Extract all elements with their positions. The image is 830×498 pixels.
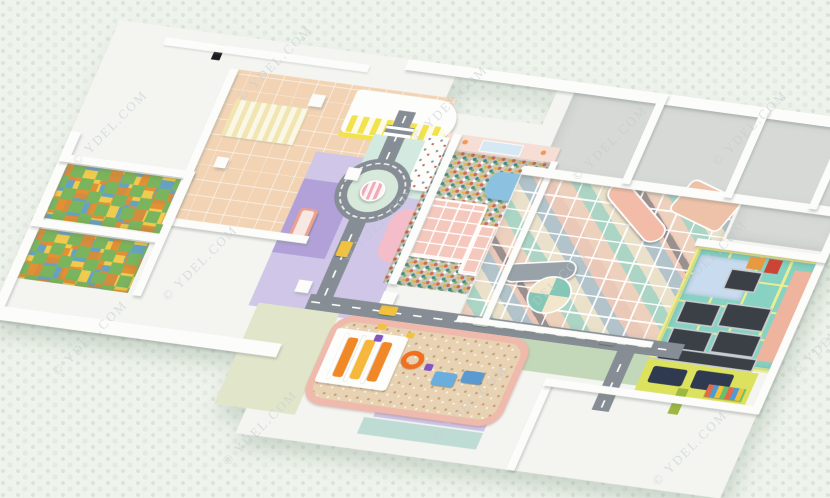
carousel: [356, 179, 389, 203]
flower-decor-icon: [462, 140, 469, 145]
flower-decor-icon: [540, 150, 547, 155]
stage: © YDEL.COM © YDEL.COM © YDEL.COM © YDEL.…: [0, 0, 830, 498]
